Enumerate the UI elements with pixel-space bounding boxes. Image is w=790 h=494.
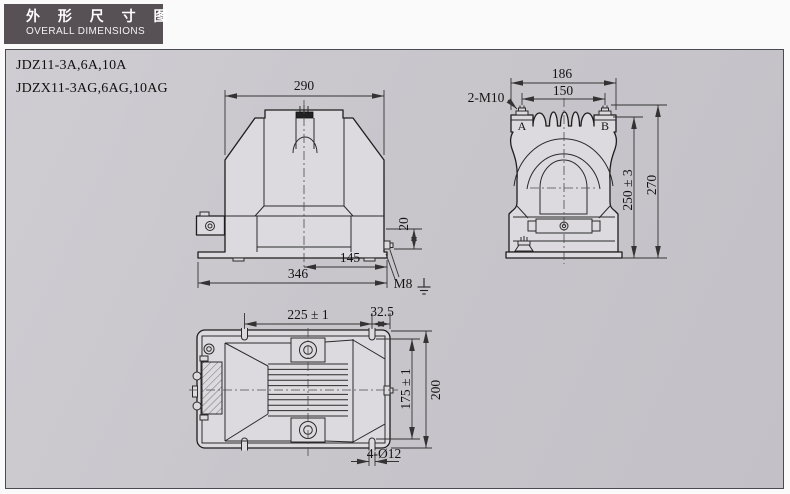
dim-bottom-slot-span-v: 175 ± 1	[398, 368, 413, 409]
dim-side-terminal-thread: 2-M10	[468, 90, 505, 105]
dim-front-ground-thread: M8	[394, 276, 413, 291]
ground-icon	[418, 278, 431, 294]
bottom-outline	[197, 330, 390, 448]
dim-side-total-height: 270	[644, 175, 659, 196]
bottom-ground-bolt	[384, 386, 393, 395]
dim-front-ground-height: 20	[396, 217, 411, 231]
side-terminal-bolt-b	[599, 106, 611, 116]
front-ground-bolt	[384, 241, 393, 249]
side-view: A B	[468, 66, 667, 264]
dim-side-terminal-pitch: 150	[553, 83, 574, 98]
dimension-drawing: 290 20 145 346 M8	[0, 0, 790, 494]
side-terminal-bolt-a	[516, 106, 528, 116]
bottom-view: 225 ± 1 32.5 175 ± 1 200 4-Ø12	[189, 304, 443, 466]
terminal-b-label: B	[601, 119, 609, 133]
dim-front-top-width: 290	[294, 78, 315, 93]
front-terminal-box	[197, 216, 225, 235]
dim-side-outer-span: 186	[552, 66, 573, 81]
dim-bottom-total-depth: 200	[428, 380, 443, 401]
dim-bottom-mount-holes: 4-Ø12	[367, 446, 402, 461]
front-foot-left	[233, 258, 244, 261]
dim-front-base-mid: 145	[340, 250, 361, 265]
front-view: 290 20 145 346 M8	[197, 78, 431, 294]
front-body-outline	[198, 110, 387, 258]
dim-bottom-slot-span: 225 ± 1	[287, 307, 328, 322]
terminal-a-label: A	[518, 119, 527, 133]
dim-front-base-full: 346	[288, 266, 309, 281]
dim-bottom-edge-offset: 32.5	[370, 304, 394, 319]
terminal-box-tab	[200, 212, 209, 216]
front-foot-right	[364, 258, 375, 261]
dim-side-body-height: 250 ± 3	[620, 169, 635, 210]
